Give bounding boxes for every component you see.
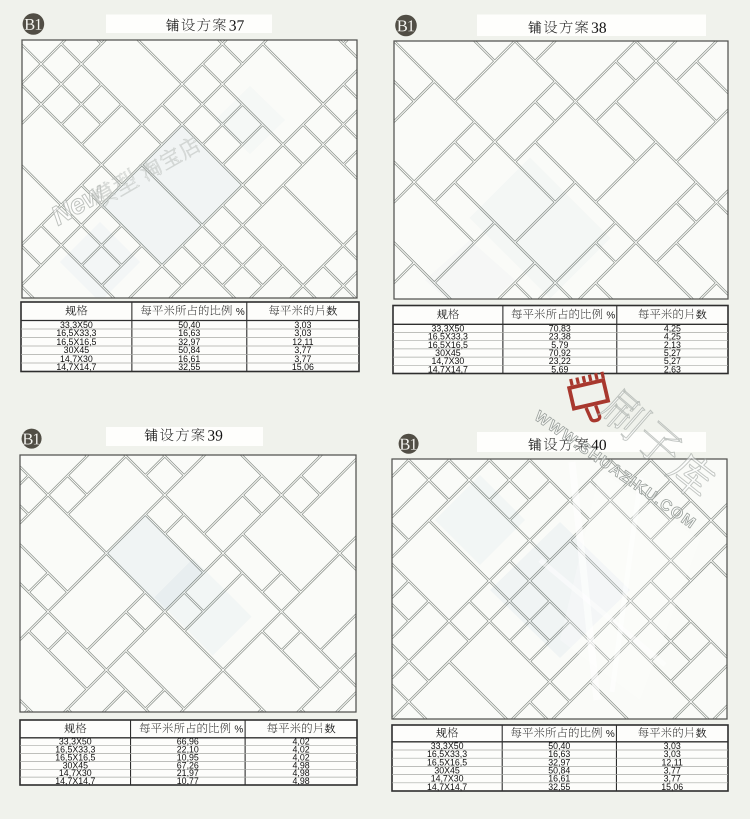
svg-text:%: % <box>236 307 245 318</box>
svg-text:%: % <box>606 729 615 740</box>
svg-text:15,06: 15,06 <box>292 362 314 372</box>
svg-text:14,7X14,7: 14,7X14,7 <box>55 776 95 786</box>
svg-text:14,7X14,7: 14,7X14,7 <box>428 364 468 374</box>
svg-text:32,55: 32,55 <box>548 782 570 792</box>
svg-text:15,06: 15,06 <box>661 782 683 792</box>
svg-text:4,98: 4,98 <box>293 776 310 786</box>
svg-text:%: % <box>606 311 615 322</box>
svg-text:14,7X14,7: 14,7X14,7 <box>56 362 96 372</box>
svg-text:5,69: 5,69 <box>551 364 568 374</box>
svg-text:14,7X14,7: 14,7X14,7 <box>427 782 467 792</box>
svg-text:10,77: 10,77 <box>177 776 199 786</box>
svg-text:32,55: 32,55 <box>178 362 200 372</box>
svg-text:2,63: 2,63 <box>664 364 681 374</box>
svg-text:%: % <box>234 725 243 736</box>
